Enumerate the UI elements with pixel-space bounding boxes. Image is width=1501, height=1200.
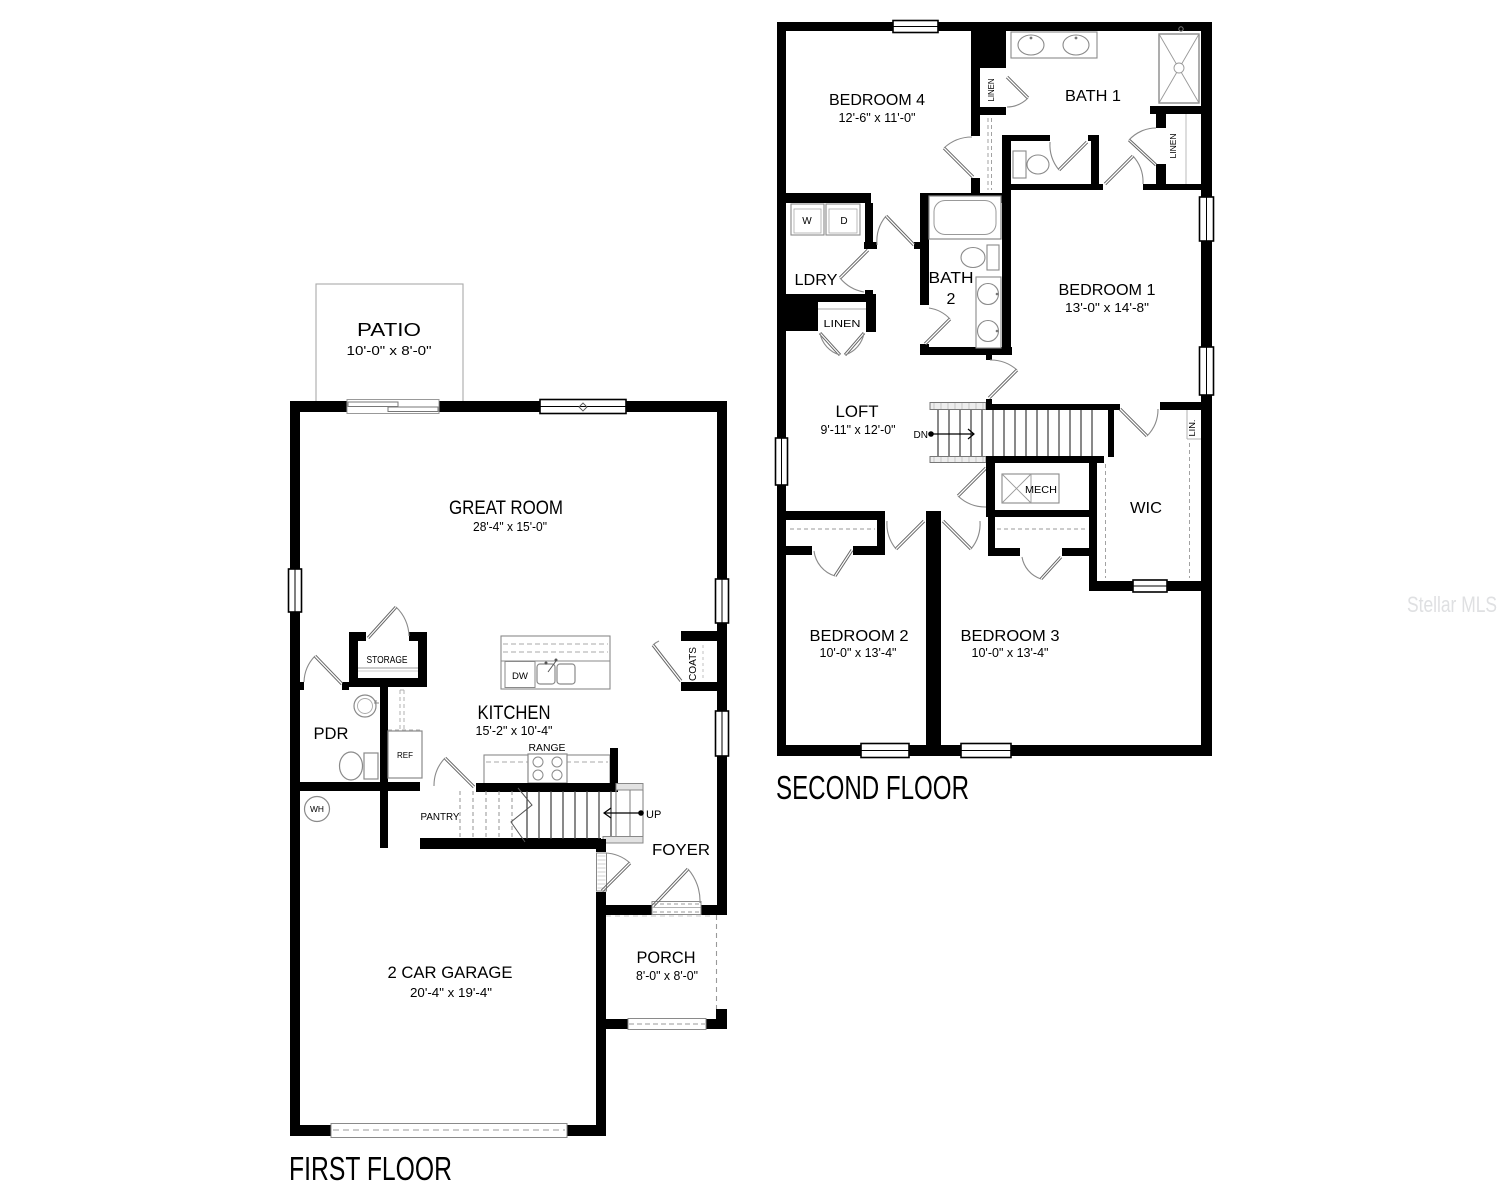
svg-text:PDR: PDR — [314, 724, 349, 743]
svg-text:LDRY: LDRY — [795, 272, 838, 289]
svg-text:28'-4" x 15'-0": 28'-4" x 15'-0" — [473, 519, 547, 534]
svg-text:PATIO: PATIO — [357, 320, 421, 340]
svg-text:FOYER: FOYER — [652, 842, 710, 859]
svg-text:MECH: MECH — [1025, 484, 1057, 496]
svg-text:10'-0" x 13'-4": 10'-0" x 13'-4" — [972, 645, 1049, 660]
svg-text:20'-4" x 19'-4": 20'-4" x 19'-4" — [410, 985, 492, 1000]
svg-text:13'-0" x 14'-8": 13'-0" x 14'-8" — [1065, 300, 1149, 315]
svg-text:PANTRY: PANTRY — [421, 811, 460, 823]
svg-text:BEDROOM 4: BEDROOM 4 — [829, 92, 925, 109]
svg-text:D: D — [840, 216, 847, 227]
svg-text:WIC: WIC — [1130, 500, 1162, 517]
svg-text:LOFT: LOFT — [836, 402, 879, 421]
svg-text:BEDROOM 2: BEDROOM 2 — [810, 628, 909, 645]
svg-text:LINEN: LINEN — [987, 78, 996, 101]
svg-text:2 CAR GARAGE: 2 CAR GARAGE — [388, 963, 513, 982]
svg-text:DW: DW — [512, 671, 529, 681]
svg-text:PORCH: PORCH — [637, 948, 696, 967]
svg-text:10'-0" x 8'-0": 10'-0" x 8'-0" — [347, 343, 432, 358]
svg-text:KITCHEN: KITCHEN — [478, 703, 551, 724]
svg-text:BEDROOM 3: BEDROOM 3 — [961, 628, 1060, 645]
svg-text:COATS: COATS — [688, 647, 699, 681]
svg-text:FIRST FLOOR: FIRST FLOOR — [289, 1150, 452, 1187]
svg-text:Stellar MLS: Stellar MLS — [1407, 592, 1497, 617]
svg-text:DN: DN — [914, 430, 928, 441]
svg-text:RANGE: RANGE — [529, 743, 566, 754]
svg-text:12'-6" x 11'-0": 12'-6" x 11'-0" — [839, 110, 916, 125]
svg-text:9'-11" x 12'-0": 9'-11" x 12'-0" — [821, 422, 896, 437]
svg-text:REF: REF — [397, 750, 413, 760]
svg-text:BATH 1: BATH 1 — [1065, 88, 1121, 105]
svg-text:STORAGE: STORAGE — [367, 655, 408, 666]
svg-text:15'-2" x 10'-4": 15'-2" x 10'-4" — [476, 723, 553, 738]
svg-text:W: W — [802, 216, 812, 227]
svg-text:LINEN: LINEN — [824, 319, 861, 330]
svg-text:LINEN: LINEN — [1169, 133, 1178, 158]
svg-text:BEDROOM 1: BEDROOM 1 — [1059, 282, 1156, 299]
svg-text:WH: WH — [310, 805, 324, 814]
svg-text:BATH: BATH — [929, 270, 974, 287]
svg-text:2: 2 — [947, 291, 956, 308]
svg-text:SECOND FLOOR: SECOND FLOOR — [776, 769, 969, 806]
svg-text:GREAT ROOM: GREAT ROOM — [449, 498, 563, 519]
svg-text:10'-0" x 13'-4": 10'-0" x 13'-4" — [820, 645, 897, 660]
svg-text:LIN.: LIN. — [1188, 420, 1197, 437]
svg-text:8'-0" x 8'-0": 8'-0" x 8'-0" — [636, 969, 698, 983]
svg-text:UP: UP — [646, 809, 661, 821]
